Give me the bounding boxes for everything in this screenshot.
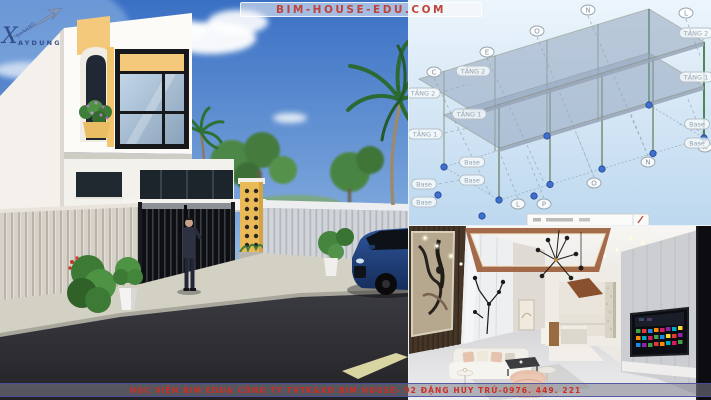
pillow: [463, 351, 475, 362]
level-tag: TẦNG 2: [408, 88, 440, 99]
small-art-frame: [519, 300, 534, 330]
pillow: [491, 352, 503, 363]
interior-door-brown: [549, 322, 559, 346]
scale-smudge: [533, 218, 541, 222]
main-window: [115, 49, 189, 149]
level-tag: TẦNG 1: [679, 72, 711, 83]
level-tag: Base: [411, 197, 437, 208]
interior-scene: [409, 226, 711, 400]
promo-collage: X DANANG AYDUNG: [0, 0, 711, 400]
watermark-logo: X DANANG AYDUNG: [2, 14, 72, 54]
grid-bubble: N: [641, 157, 656, 168]
level-tag: TẦNG 1: [452, 109, 487, 120]
level-tag: Base: [684, 119, 710, 130]
grid-bubble: O: [587, 178, 602, 189]
grid-bubble: O: [530, 26, 545, 37]
level-tag: Base: [411, 179, 437, 190]
bim-structural-pane: C E O N L L P O N K TẦNG 2 TẦNG 2 TẦNG 2…: [408, 0, 711, 225]
grid-bubble: P: [537, 199, 552, 210]
site-url-badge: BIM-HOUSE-EDU.COM: [240, 2, 482, 17]
view-control-bar: [527, 214, 649, 225]
level-tag: Base: [459, 157, 485, 168]
level-tag: TẦNG 1: [408, 129, 442, 140]
decor-pillar: [238, 178, 265, 260]
interior-render-pane: [408, 225, 711, 400]
black-cabinet: [696, 226, 711, 400]
level-tag: Base: [459, 175, 485, 186]
grid-bubble: L: [679, 8, 694, 19]
logo-initial: X: [2, 26, 18, 48]
level-tag: TẦNG 2: [456, 66, 491, 77]
footer-banner: HỌC VIỆN BIM EDU& CÔNG TY TVTK&XD BIM HO…: [0, 383, 711, 397]
grid-bubble: E: [480, 47, 495, 58]
grid-bubble: C: [427, 67, 442, 78]
abstract-art: [412, 232, 454, 336]
exterior-scene: [0, 0, 408, 400]
footer-banner-text: HỌC VIỆN BIM EDU& CÔNG TY TVTK&XD BIM HO…: [130, 386, 582, 395]
stone-pillar: [605, 282, 616, 338]
level-tag: TẦNG 2: [679, 28, 711, 39]
grid-bubble: N: [581, 5, 596, 16]
logo-word: AYDUNG: [18, 39, 62, 47]
pillow: [477, 351, 488, 361]
wallpaper-wall: [513, 242, 545, 332]
level-tag: Base: [684, 138, 710, 149]
exterior-render-pane: X DANANG AYDUNG: [0, 0, 408, 400]
tv-screen: [631, 308, 688, 356]
grid-bubble: L: [511, 199, 526, 210]
view-name-smudge: [546, 218, 573, 222]
